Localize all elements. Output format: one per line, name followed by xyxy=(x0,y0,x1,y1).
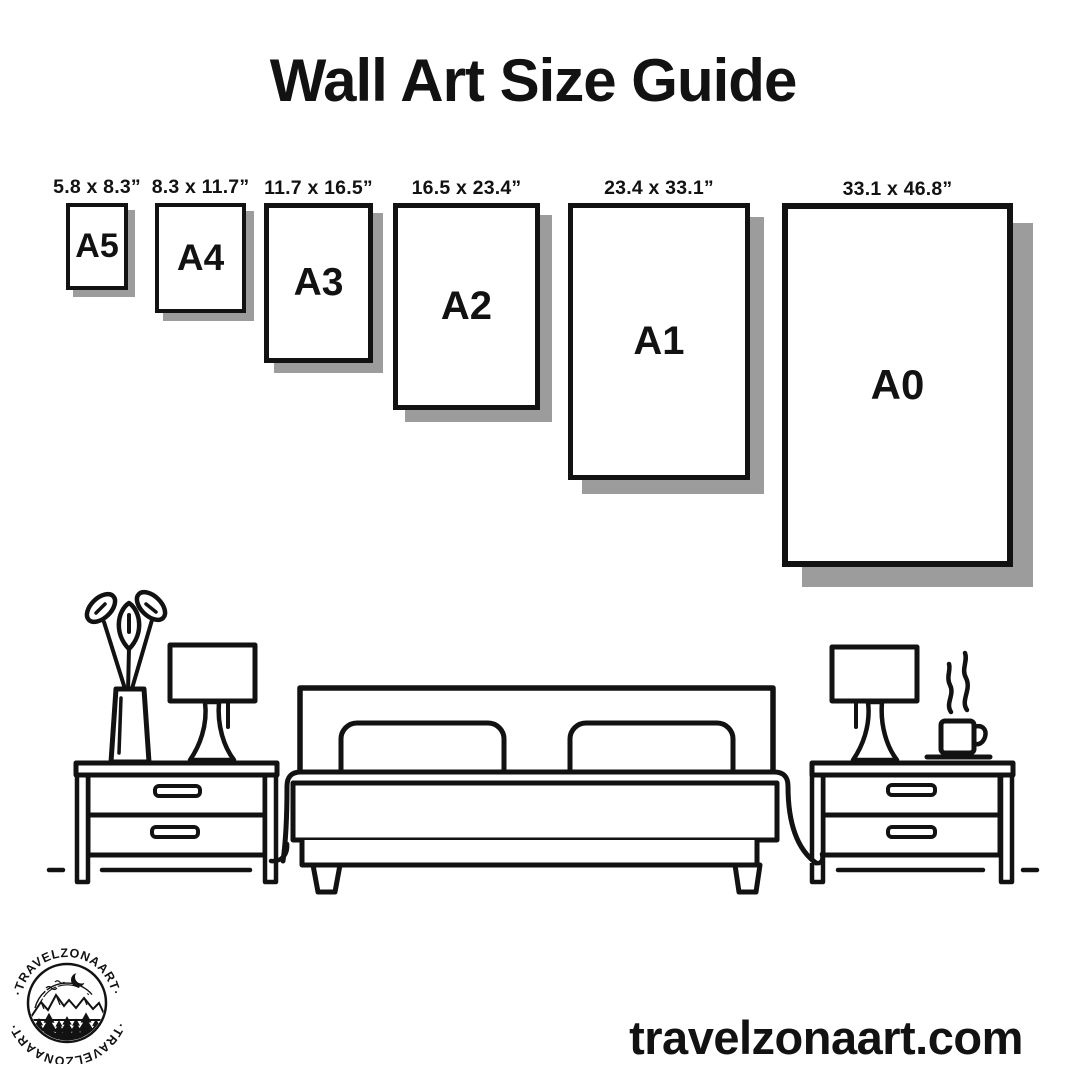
paper-size-label: A4 xyxy=(177,237,224,279)
paper-size-card-a4: 8.3 x 11.7” A4 xyxy=(155,203,246,313)
paper-size-label: A3 xyxy=(294,261,344,305)
paper-size-dimensions: 11.7 x 16.5” xyxy=(264,177,373,200)
paper-size-dimensions: 5.8 x 8.3” xyxy=(53,176,141,199)
potted-plant-icon xyxy=(82,587,170,762)
paper-size-dimensions: 16.5 x 23.4” xyxy=(412,177,522,200)
paper-size-dimensions: 8.3 x 11.7” xyxy=(152,176,250,199)
table-lamp-left-icon xyxy=(170,645,255,760)
steam-icon xyxy=(948,664,951,712)
paper-size-dimensions: 23.4 x 33.1” xyxy=(604,177,714,200)
page-title: Wall Art Size Guide xyxy=(0,46,1066,115)
website-url: travelzonaart.com xyxy=(629,1010,1023,1065)
bed-leg-icon xyxy=(313,865,340,892)
steam-icon xyxy=(964,653,968,710)
paper-size-card-a5: 5.8 x 8.3” A5 xyxy=(66,203,128,290)
logo-text-top: ·TRAVELZONAART· xyxy=(11,946,124,997)
nightstand-left-icon xyxy=(76,763,277,882)
bed-leg-icon xyxy=(735,865,760,892)
paper-size-dimensions: 33.1 x 46.8” xyxy=(843,178,953,201)
table-lamp-right-icon xyxy=(832,647,917,760)
paper-size-label: A1 xyxy=(633,319,684,364)
crescent-moon-icon xyxy=(71,971,88,988)
logo-landscape-scene xyxy=(26,971,109,1049)
brand-logo: ·TRAVELZONAART· ·TRAVELZONAART· xyxy=(8,942,126,1064)
paper-size-label: A0 xyxy=(871,361,925,409)
paper-size-card-a3: 11.7 x 16.5” A3 xyxy=(264,203,373,363)
nightstand-right-icon xyxy=(812,763,1013,882)
paper-size-card-a0: 33.1 x 46.8” A0 xyxy=(782,203,1013,567)
size-guide-infographic: Wall Art Size Guide 5.8 x 8.3” A5 8.3 x … xyxy=(0,0,1080,1080)
double-bed-icon xyxy=(271,688,822,892)
paper-size-label: A2 xyxy=(441,284,492,329)
paper-size-card-a2: 16.5 x 23.4” A2 xyxy=(393,203,540,410)
paper-size-card-a1: 23.4 x 33.1” A1 xyxy=(568,203,750,480)
bird-icon xyxy=(55,981,64,984)
mountains-icon xyxy=(29,995,107,1020)
paper-size-label: A5 xyxy=(75,227,118,266)
bedroom-illustration xyxy=(40,585,1045,905)
coffee-cup-icon xyxy=(927,653,990,757)
